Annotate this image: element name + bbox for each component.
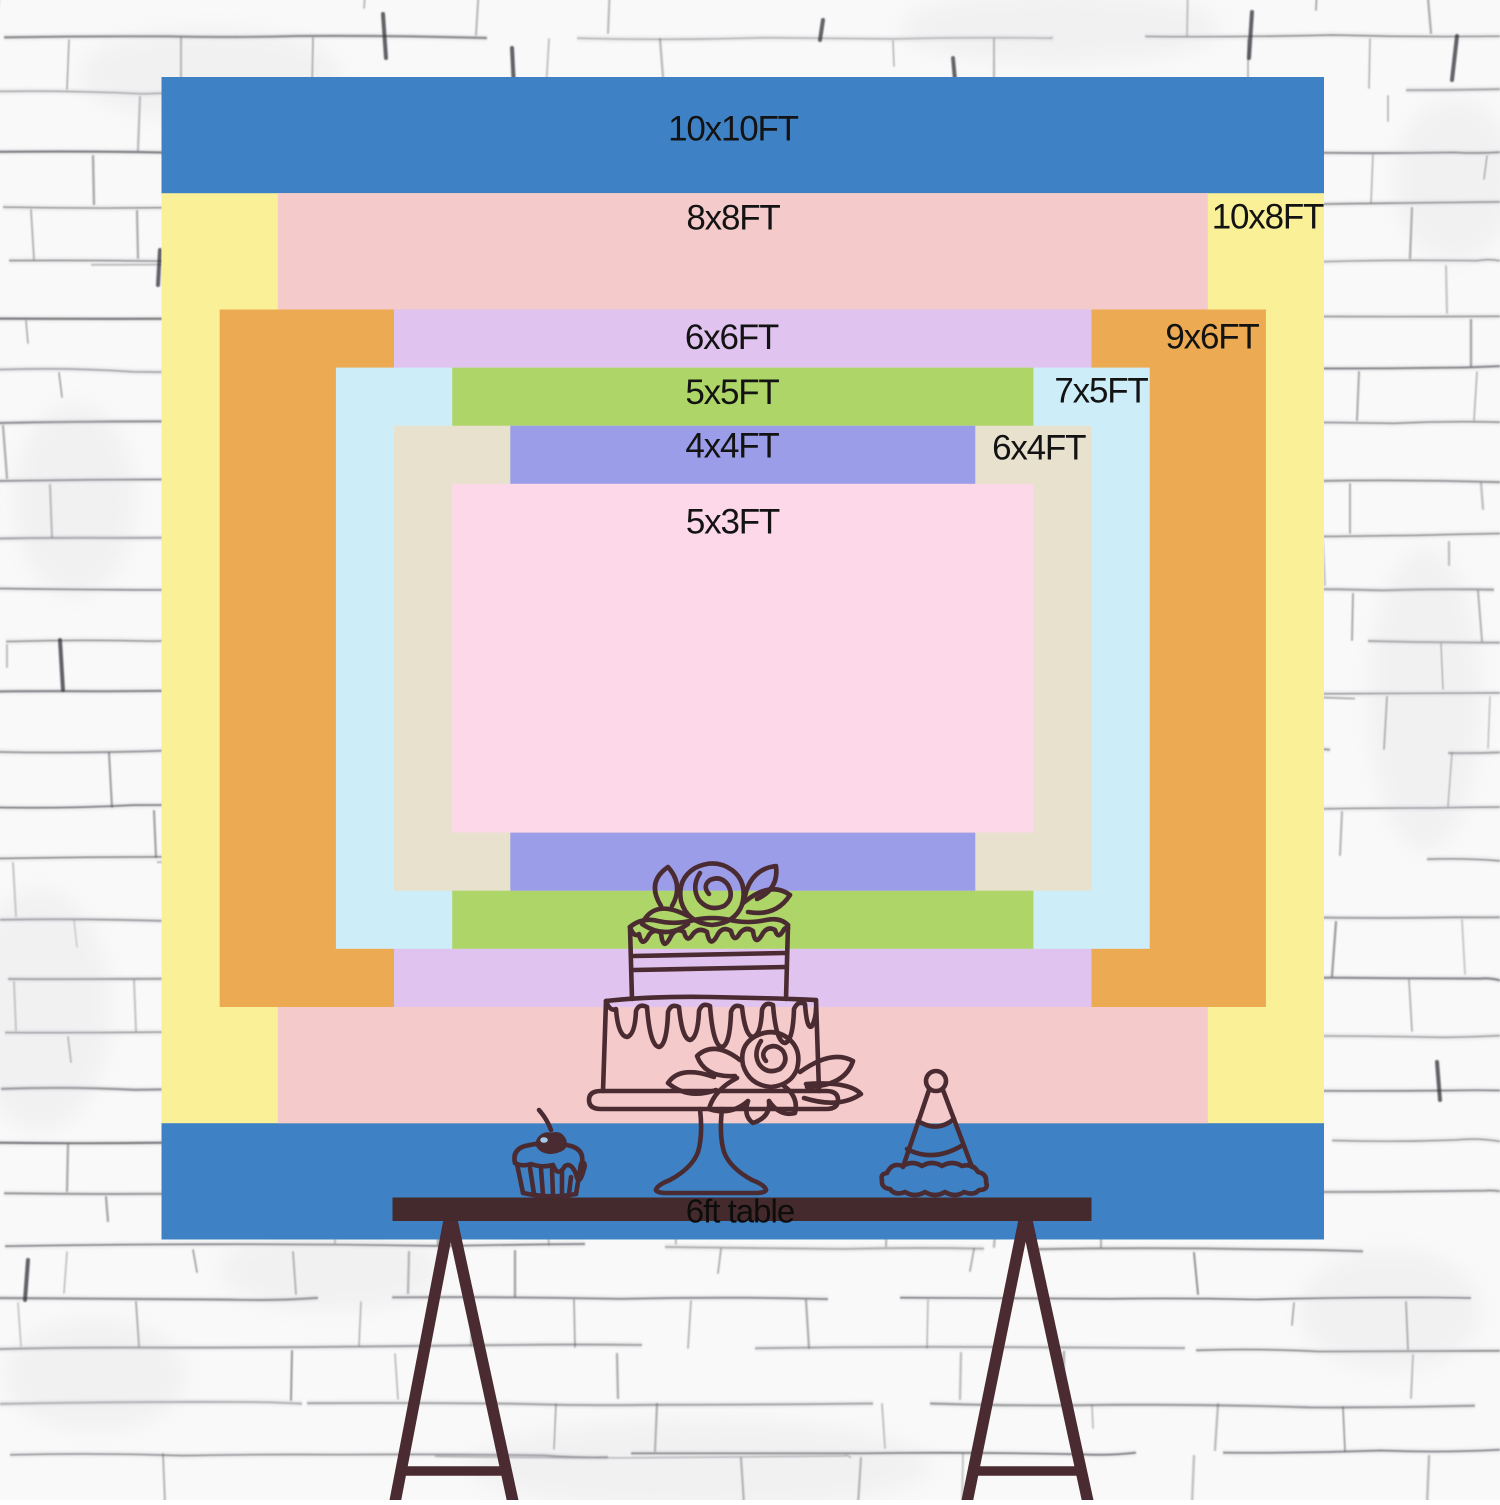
svg-text:9x6FT: 9x6FT xyxy=(1165,318,1259,357)
svg-text:10x10FT: 10x10FT xyxy=(668,110,799,149)
svg-text:10x8FT: 10x8FT xyxy=(1212,198,1324,237)
svg-text:4x4FT: 4x4FT xyxy=(685,427,779,466)
svg-text:7x5FT: 7x5FT xyxy=(1054,372,1148,411)
svg-text:5x5FT: 5x5FT xyxy=(685,373,779,412)
svg-text:6x6FT: 6x6FT xyxy=(685,318,779,357)
svg-text:6ft table: 6ft table xyxy=(686,1193,794,1230)
svg-text:6x4FT: 6x4FT xyxy=(992,429,1086,468)
svg-text:8x8FT: 8x8FT xyxy=(686,199,780,238)
svg-text:5x3FT: 5x3FT xyxy=(686,503,780,542)
